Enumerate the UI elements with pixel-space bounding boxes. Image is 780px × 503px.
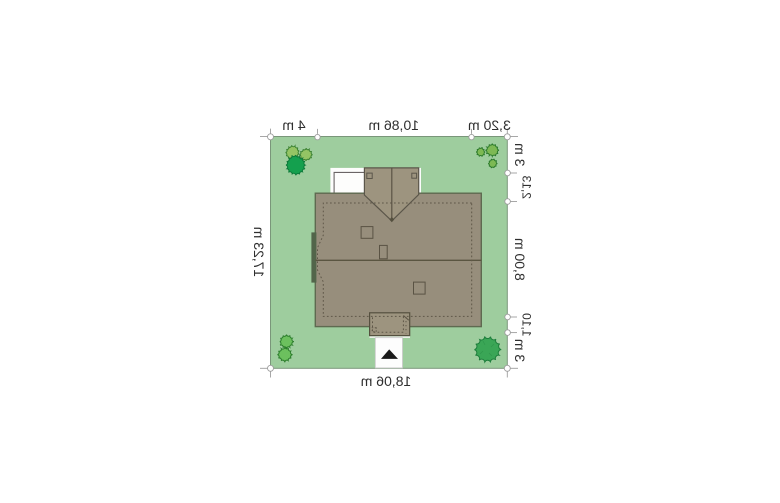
svg-text:17,23 m: 17,23 m bbox=[251, 227, 267, 278]
svg-text:3 m: 3 m bbox=[512, 143, 528, 166]
svg-text:4 m: 4 m bbox=[282, 117, 305, 133]
svg-text:8,00 m: 8,00 m bbox=[512, 238, 528, 281]
svg-text:3 m: 3 m bbox=[512, 339, 528, 362]
svg-text:3,20 m: 3,20 m bbox=[468, 117, 511, 133]
svg-text:18,06 m: 18,06 m bbox=[361, 373, 412, 389]
svg-text:10,86 m: 10,86 m bbox=[368, 117, 419, 133]
svg-text:2,13: 2,13 bbox=[520, 175, 534, 199]
svg-text:1,10: 1,10 bbox=[520, 313, 534, 337]
